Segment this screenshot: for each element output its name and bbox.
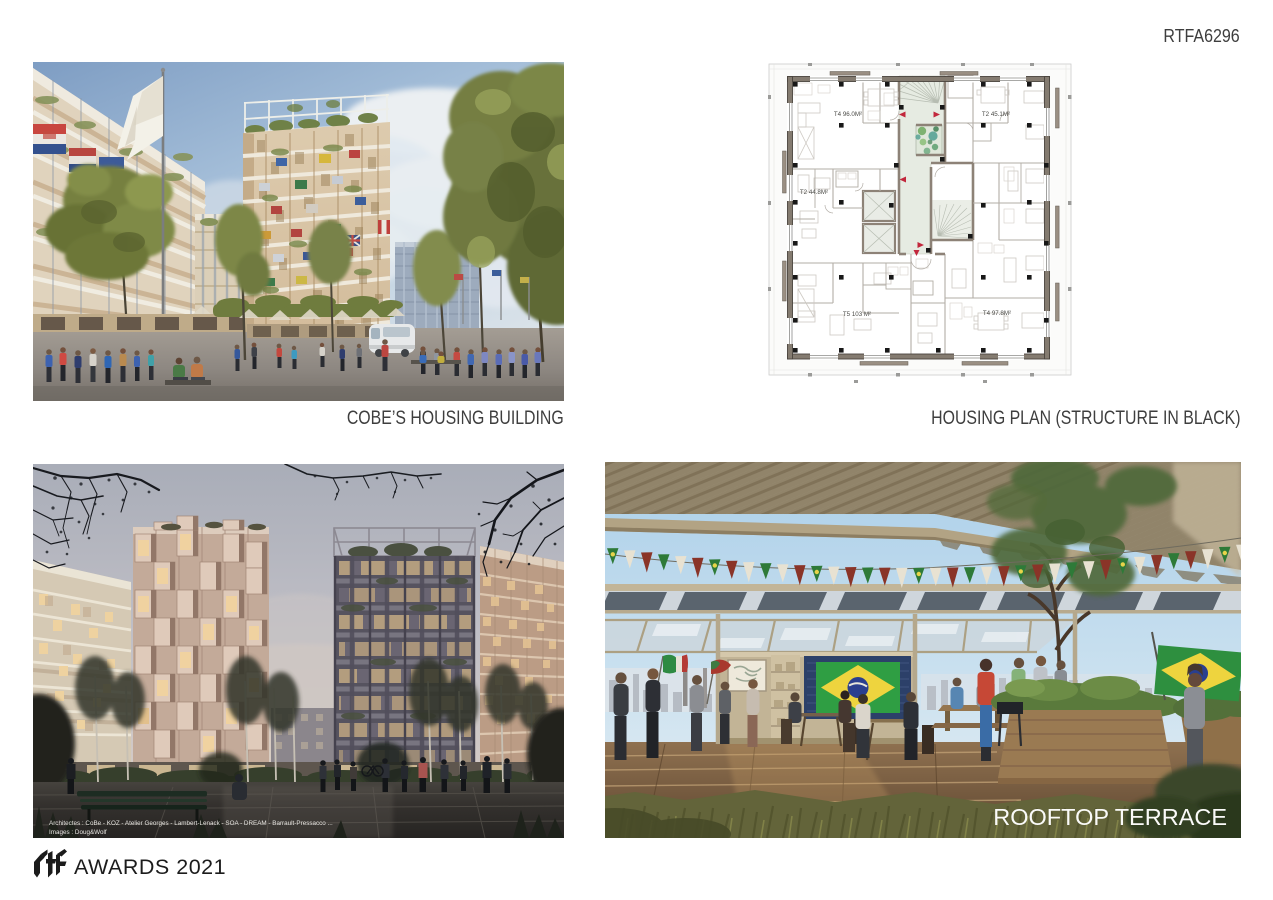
svg-text:Architectes : CoBe - KOZ - Ate: Architectes : CoBe - KOZ - Atelier Georg… [49, 820, 333, 827]
svg-text:T4 97.8M²: T4 97.8M² [983, 310, 1011, 317]
svg-text:T5 103 M²: T5 103 M² [843, 311, 871, 318]
svg-text:T2 44.8M²: T2 44.8M² [800, 189, 828, 196]
svg-text:Images : Doug&Wolf: Images : Doug&Wolf [49, 829, 107, 836]
svg-text:T4 96.0M²: T4 96.0M² [834, 111, 862, 118]
svg-text:ROOFTOP TERRACE: ROOFTOP TERRACE [993, 804, 1227, 830]
svg-text:T2 45.1M²: T2 45.1M² [982, 111, 1010, 118]
